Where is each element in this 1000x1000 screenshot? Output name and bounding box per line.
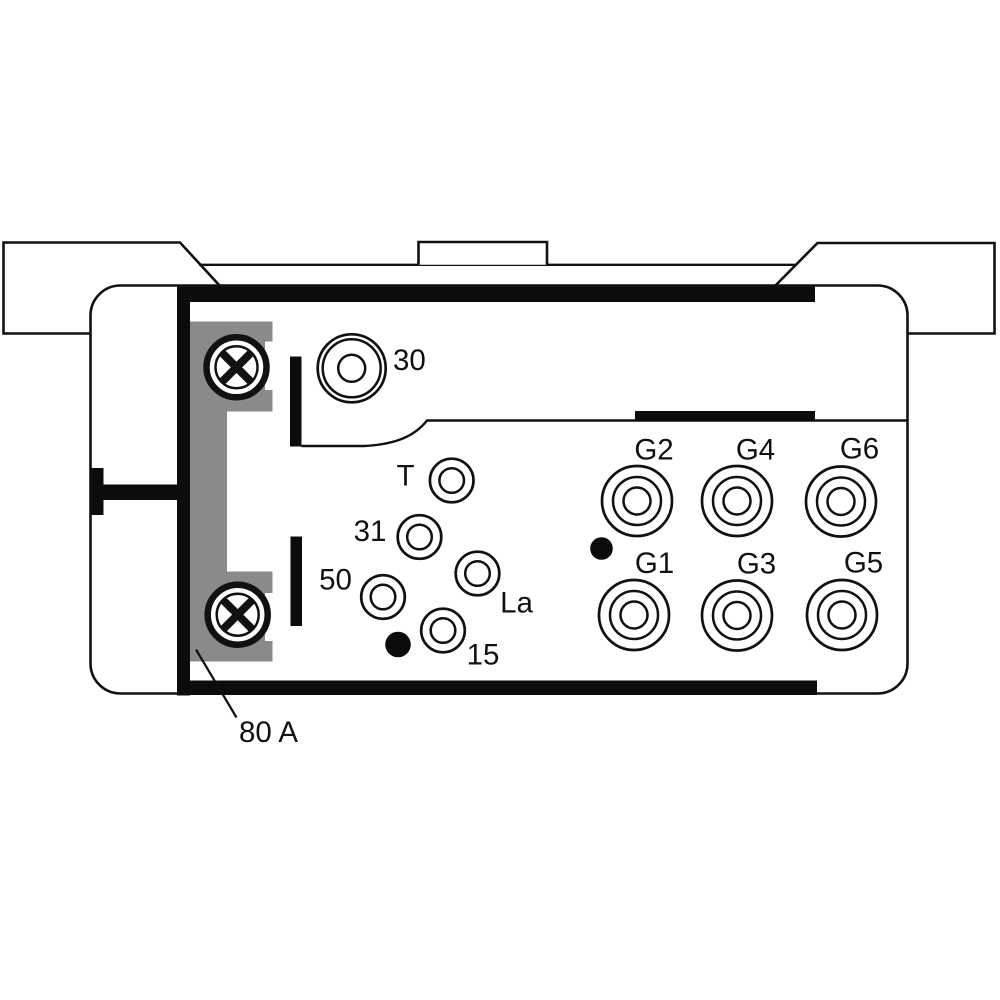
divider-contact-bar: [635, 411, 815, 421]
label-terminal-G3: G3: [737, 548, 776, 581]
terminal-30: [318, 334, 386, 402]
screw-terminal-top: [207, 337, 267, 397]
separator-bar-lower: [291, 537, 303, 627]
terminal-G2: [602, 466, 672, 536]
blade-bar: [91, 485, 178, 501]
terminal-G3: [702, 581, 772, 651]
top-center-tab: [419, 242, 548, 265]
terminal-G4: [702, 466, 772, 536]
index-dot-left: [385, 632, 411, 658]
terminal-31: [398, 515, 442, 559]
label-terminal-G5: G5: [844, 547, 883, 580]
terminal-G1: [599, 580, 669, 650]
bottom-busbar: [177, 681, 817, 696]
terminal-ring: [361, 575, 405, 619]
index-dot-right: [590, 537, 613, 560]
label-terminal-50: 50: [319, 564, 352, 597]
label-terminal-La: La: [500, 587, 533, 620]
connector-pinout-diagram: 30 T 31 50 La 15 G2 G4 G6 G1 G3 G5 80 A: [0, 0, 1000, 1000]
label-terminal-15: 15: [467, 639, 500, 672]
blade-cap: [91, 468, 104, 515]
terminal-G6: [806, 467, 876, 537]
terminal-ring: [421, 609, 465, 653]
label-terminal-30: 30: [393, 344, 426, 377]
label-terminal-G2: G2: [634, 434, 673, 467]
terminal-ring: [318, 334, 386, 402]
label-terminal-G4: G4: [736, 434, 775, 467]
screw-terminal-bottom: [208, 585, 268, 645]
terminal-ring: [430, 459, 474, 503]
terminal-ring: [398, 515, 442, 559]
terminal-La: [456, 552, 500, 596]
label-fuse-rating: 80 A: [239, 716, 298, 749]
top-busbar: [177, 287, 815, 303]
terminal-ring: [456, 552, 500, 596]
terminal-50: [361, 575, 405, 619]
terminal-15: [421, 609, 465, 653]
label-terminal-31: 31: [354, 515, 387, 548]
terminal-T: [430, 459, 474, 503]
left-inner-wall: [177, 287, 190, 696]
separator-bar-upper: [290, 357, 302, 447]
diagram-canvas: 30 T 31 50 La 15 G2 G4 G6 G1 G3 G5 80 A: [0, 0, 1000, 1000]
label-terminal-G1: G1: [635, 547, 674, 580]
terminal-G5: [807, 580, 877, 650]
label-terminal-T: T: [396, 460, 414, 493]
label-terminal-G6: G6: [840, 433, 879, 466]
